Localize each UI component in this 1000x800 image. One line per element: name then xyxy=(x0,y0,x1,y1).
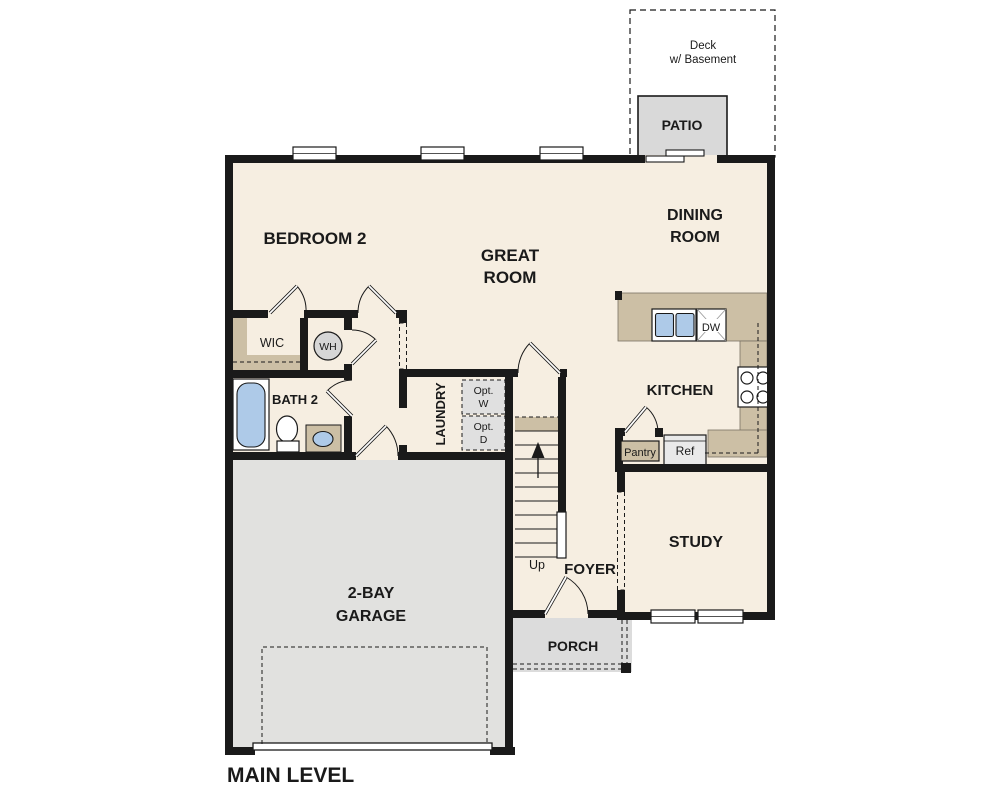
opt-washer-label-1: Opt. xyxy=(474,385,494,397)
stair-handrail xyxy=(557,512,566,558)
floor-plan-svg: BEDROOM 2 GREAT ROOM DINING ROOM KITCHEN… xyxy=(0,0,1000,800)
deck-label-2: w/ Basement xyxy=(669,54,737,66)
stair-landing xyxy=(515,417,558,431)
dishwasher-label: DW xyxy=(702,322,721,334)
opt-washer-label-2: W xyxy=(479,398,489,410)
garage-door-panel xyxy=(253,743,492,750)
patio-label: PATIO xyxy=(662,117,703,133)
floor-plan-canvas: BEDROOM 2 GREAT ROOM DINING ROOM KITCHEN… xyxy=(0,0,1000,800)
great-room-label-1: GREAT xyxy=(481,246,540,265)
dining-label-2: ROOM xyxy=(670,229,720,246)
kitchen-sink-bowl-right xyxy=(676,314,694,337)
refrigerator-label: Ref xyxy=(676,444,695,458)
laundry-label: LAUNDRY xyxy=(433,382,448,445)
foyer-study-opening xyxy=(618,492,625,590)
kitchen-sink-bowl-left xyxy=(656,314,674,337)
wic-label: WIC xyxy=(260,336,284,350)
opt-dryer-label-1: Opt. xyxy=(474,421,494,433)
garage-label-2: GARAGE xyxy=(336,608,407,625)
bedroom2-label: BEDROOM 2 xyxy=(264,229,367,248)
bathtub xyxy=(237,383,265,447)
kitchen-label: KITCHEN xyxy=(647,382,714,399)
porch-post xyxy=(621,663,631,673)
bath-sink xyxy=(313,432,333,447)
toilet-bowl xyxy=(277,416,298,442)
study-label: STUDY xyxy=(669,534,724,551)
hall-great-room-opening xyxy=(400,323,407,369)
dining-label-1: DINING xyxy=(667,207,723,224)
porch-label: PORCH xyxy=(548,638,599,654)
plan-title: MAIN LEVEL xyxy=(227,764,354,787)
toilet-tank xyxy=(277,441,299,452)
water-heater-label: WH xyxy=(319,341,337,353)
wic-rod xyxy=(233,318,247,357)
stairs-up-label: Up xyxy=(529,558,545,572)
deck-label-1: Deck xyxy=(690,40,716,52)
opt-dryer-label-2: D xyxy=(480,434,488,446)
pantry-label: Pantry xyxy=(624,447,656,459)
bath2-label: BATH 2 xyxy=(272,392,318,407)
garage-floor xyxy=(233,460,505,747)
great-room-label-2: ROOM xyxy=(484,268,537,287)
garage-label-1: 2-BAY xyxy=(348,585,395,602)
foyer-label: FOYER xyxy=(564,561,616,578)
